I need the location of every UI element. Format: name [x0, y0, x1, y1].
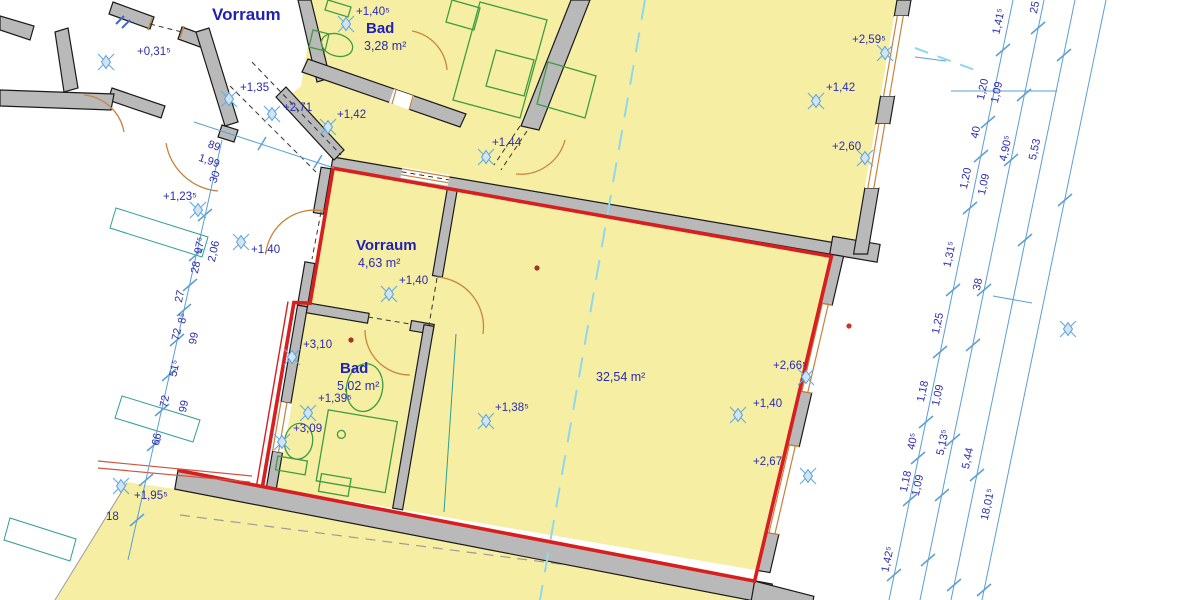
dimension-label: 72: [158, 394, 172, 408]
room-label: Bad: [366, 20, 394, 37]
dimension-labels-door: 89 1,99 30: [197, 138, 223, 184]
elevation-label: +1,42: [826, 82, 855, 94]
dimension-label: 5,13⁵: [934, 428, 951, 456]
reference-dot: [534, 265, 539, 270]
elevation-label: +1,23⁵: [163, 191, 197, 203]
dimension-label: 1,41⁵: [990, 7, 1007, 35]
elevation-label: +2,71: [283, 102, 312, 114]
wall-segment: [55, 28, 78, 92]
dimension-label: 2,06: [206, 240, 222, 263]
elevation-label: +1,40: [753, 398, 782, 410]
room-area-label: 5,02 m²: [337, 379, 379, 393]
dimension-label: 1,09: [989, 81, 1005, 104]
dimension-label: 1,31⁵: [941, 240, 958, 268]
dimension-label: 1,18: [915, 380, 931, 403]
wall-segment: [0, 90, 114, 110]
room-label: Bad: [340, 360, 368, 377]
dimension-label: 40: [969, 125, 983, 139]
section-line: [915, 48, 975, 70]
dimension-label: 5,44: [960, 447, 976, 470]
elevation-label: +3,09: [293, 423, 322, 435]
wall-segment: [0, 16, 34, 40]
elevation-label: +2,60: [832, 141, 861, 153]
elevation-label: +1,95⁵: [134, 490, 168, 502]
dimension-labels-right: 1,41⁵ 1,20 40 1,20 1,31⁵ 1,25 1,18 40⁵ 1…: [879, 0, 1043, 573]
dimension-label: 66: [150, 432, 164, 446]
elevation-label: +1,38⁵: [495, 402, 529, 414]
dimension-label: 40⁵: [905, 432, 920, 451]
elevation-label: +0,31⁵: [137, 46, 171, 58]
elevation-label: +3,10: [303, 339, 332, 351]
dimension-label: 99: [187, 331, 201, 345]
dimension-label: 8⁵: [176, 312, 190, 325]
dimension-label: 25: [1028, 0, 1042, 14]
floor-plan-svg: Vorraum Bad 3,28 m² Vorraum 4,63 m² Bad …: [0, 0, 1200, 600]
reference-dot: [846, 323, 851, 328]
reference-dot: [348, 337, 353, 342]
elevation-label: +1,42: [337, 109, 366, 121]
dimension-label: 99: [177, 399, 191, 413]
dimension-label: 18,01⁵: [979, 487, 997, 521]
elevation-label: 18: [106, 511, 119, 523]
wall-bottom-step: [750, 581, 814, 600]
dimension-label: 38: [971, 277, 985, 291]
wall-segment: [109, 2, 154, 29]
dimension-label: 1,09: [930, 384, 946, 407]
room-area-label: 32,54 m²: [596, 370, 645, 384]
room-label: Vorraum: [356, 237, 417, 254]
dimension-label: 1,99: [197, 152, 221, 170]
elevation-label: +2,66⁵: [773, 360, 807, 372]
elevation-label: +2,59⁵: [852, 34, 886, 46]
elevation-label: +1,40: [251, 244, 280, 256]
dimension-label: 30: [207, 169, 222, 184]
room-area-label: 3,28 m²: [364, 39, 406, 53]
elevation-label: +1,40⁵: [356, 6, 390, 18]
room-area-label: 4,63 m²: [358, 256, 400, 270]
dimension-label: 97⁵: [192, 236, 207, 255]
balcony-edge-line: [98, 461, 252, 476]
room-label: Vorraum: [212, 5, 281, 24]
elevation-label: +1,40: [399, 275, 428, 287]
elevation-label: +1,44: [492, 137, 522, 149]
dimension-label: 27: [173, 289, 187, 303]
elevation-label: +1,39⁵: [318, 393, 352, 405]
dimension-ticks: [887, 22, 1072, 596]
dimension-label: 1,09: [976, 173, 992, 196]
dimension-label: 1,42⁵: [879, 545, 896, 573]
dimension-label: 1,25: [930, 312, 946, 335]
floor-plan-page: Vorraum Bad 3,28 m² Vorraum 4,63 m² Bad …: [0, 0, 1200, 600]
dimension-label: 1,20: [975, 78, 991, 101]
dimension-label: 1,20: [958, 167, 974, 190]
elevation-label: +2,67: [753, 456, 782, 468]
wall-pier: [894, 0, 911, 16]
dimension-label: 5,53: [1027, 138, 1043, 161]
stair-outline: [4, 518, 76, 561]
opening-dashed-line: [150, 24, 182, 32]
dimension-label: 28: [189, 260, 203, 274]
elevation-label: +1,35: [240, 82, 269, 94]
dimension-label: 72: [170, 327, 184, 341]
dimension-label: 51⁵: [167, 359, 182, 378]
wall-segment: [196, 28, 238, 126]
